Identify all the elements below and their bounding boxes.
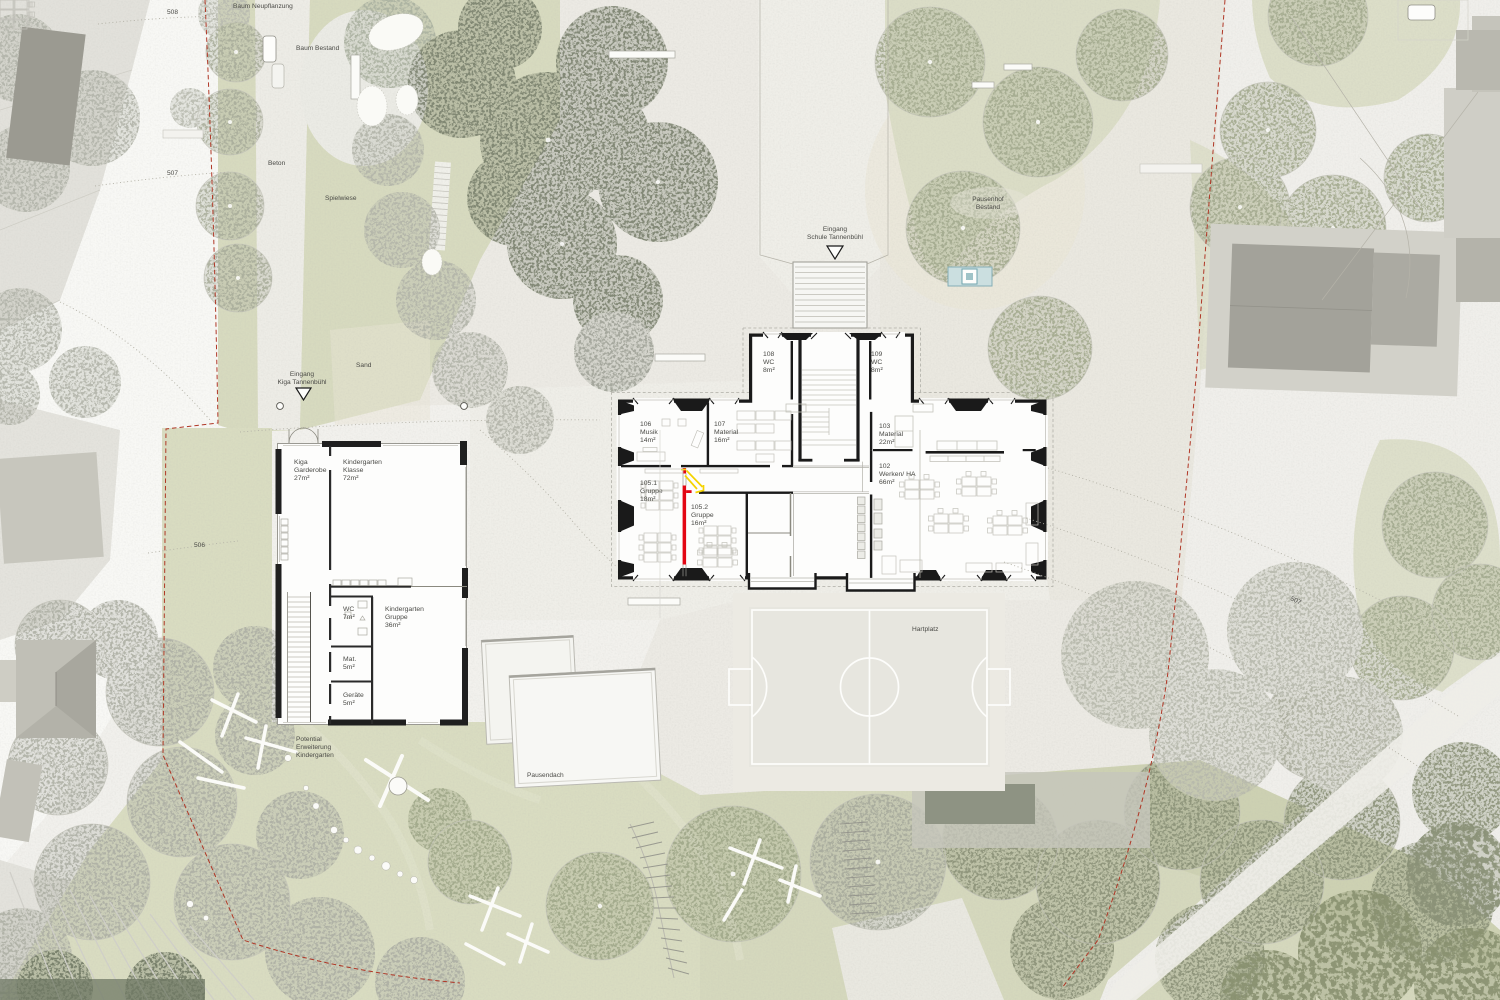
svg-text:107: 107 — [714, 421, 726, 428]
svg-text:Pausendach: Pausendach — [527, 772, 564, 779]
svg-text:27m²: 27m² — [294, 475, 310, 482]
svg-text:Mat.: Mat. — [343, 656, 356, 663]
svg-text:Material: Material — [714, 429, 739, 436]
svg-text:102: 102 — [879, 463, 891, 470]
svg-text:Eingang: Eingang — [290, 371, 315, 378]
svg-text:18m²: 18m² — [640, 496, 656, 503]
svg-text:WC: WC — [871, 359, 882, 366]
svg-text:Gruppe: Gruppe — [640, 488, 663, 495]
svg-text:72m²: 72m² — [343, 475, 359, 482]
svg-text:Kindergarten: Kindergarten — [296, 752, 334, 759]
svg-text:Kiga Tannenbühl: Kiga Tannenbühl — [277, 379, 327, 386]
svg-text:16m²: 16m² — [714, 437, 730, 444]
svg-text:Garderobe: Garderobe — [294, 467, 327, 474]
svg-text:Erweiterung: Erweiterung — [296, 744, 332, 751]
svg-text:Kindergarten: Kindergarten — [343, 459, 382, 466]
svg-text:Klasse: Klasse — [343, 467, 364, 474]
svg-text:506: 506 — [194, 542, 205, 549]
svg-text:Kiga: Kiga — [294, 459, 308, 466]
svg-text:106: 106 — [640, 421, 652, 428]
svg-text:105.2: 105.2 — [691, 504, 708, 511]
svg-text:5m²: 5m² — [343, 700, 355, 707]
svg-text:Musik: Musik — [640, 429, 658, 436]
svg-text:5m²: 5m² — [343, 664, 355, 671]
svg-text:7m²: 7m² — [343, 614, 355, 621]
svg-text:14m²: 14m² — [640, 437, 656, 444]
svg-text:36m²: 36m² — [385, 622, 401, 629]
svg-text:507: 507 — [167, 170, 178, 177]
svg-text:16m²: 16m² — [691, 520, 707, 527]
svg-text:WC: WC — [763, 359, 774, 366]
svg-text:Schule Tannenbühl: Schule Tannenbühl — [807, 234, 864, 241]
svg-text:Geräte: Geräte — [343, 692, 364, 699]
svg-text:108: 108 — [763, 351, 775, 358]
svg-text:105.1: 105.1 — [640, 480, 657, 487]
svg-text:Spielwiese: Spielwiese — [325, 195, 357, 202]
svg-text:Baum Neupflanzung: Baum Neupflanzung — [233, 3, 293, 10]
svg-text:Potential: Potential — [296, 736, 322, 743]
svg-text:WC: WC — [343, 606, 354, 613]
svg-text:Baum Bestand: Baum Bestand — [296, 45, 340, 52]
svg-text:Sand: Sand — [356, 362, 372, 369]
svg-text:Werken/ HA: Werken/ HA — [879, 471, 916, 478]
svg-text:Beton: Beton — [268, 160, 286, 167]
svg-text:Gruppe: Gruppe — [691, 512, 714, 519]
svg-text:109: 109 — [871, 351, 883, 358]
svg-text:Material: Material — [879, 431, 904, 438]
svg-text:8m²: 8m² — [763, 367, 775, 374]
svg-text:Kindergarten: Kindergarten — [385, 606, 424, 613]
svg-text:22m²: 22m² — [879, 439, 895, 446]
svg-text:66m²: 66m² — [879, 479, 895, 486]
svg-text:Bestand: Bestand — [976, 204, 1001, 211]
svg-text:Hartplatz: Hartplatz — [912, 626, 938, 633]
svg-text:508: 508 — [167, 9, 178, 16]
svg-text:103: 103 — [879, 423, 891, 430]
svg-text:Gruppe: Gruppe — [385, 614, 408, 621]
svg-text:Eingang: Eingang — [823, 226, 848, 233]
svg-text:Pausenhof: Pausenhof — [972, 196, 1004, 203]
svg-text:8m²: 8m² — [871, 367, 883, 374]
